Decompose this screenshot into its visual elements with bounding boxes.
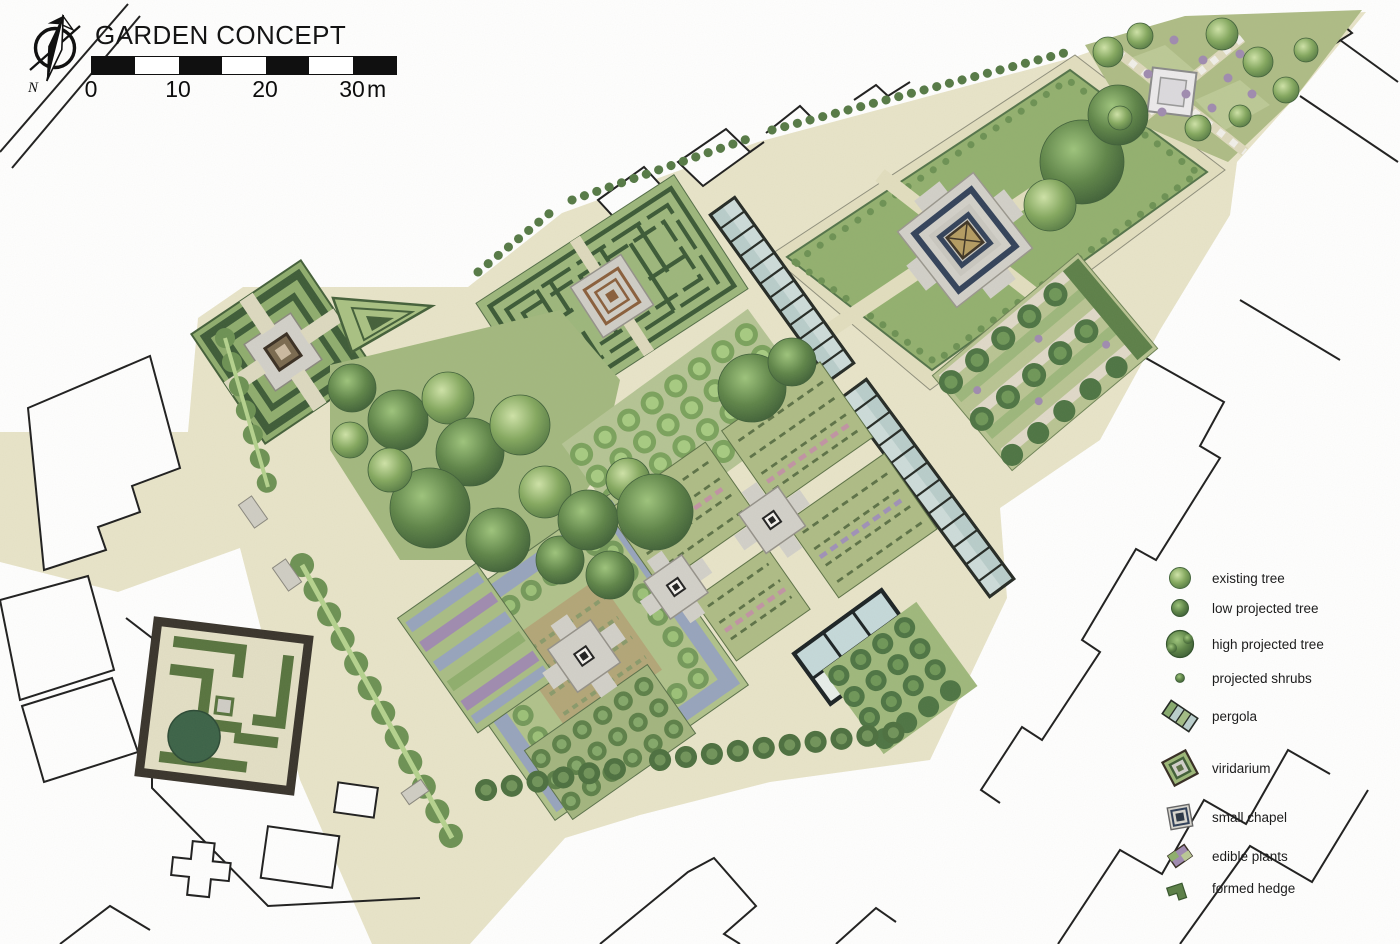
scale-tick-10: 10	[165, 76, 191, 103]
garden-concept-plan: N GARDEN CONCEPT 0 10 20 30 m existing t…	[0, 0, 1400, 944]
north-arrow-icon: N	[22, 8, 88, 104]
scale-bar	[91, 56, 397, 75]
scale-segment	[309, 57, 352, 74]
scale-segment	[222, 57, 265, 74]
scale-segment	[266, 57, 309, 74]
scale-tick-30: 30	[339, 76, 365, 103]
scale-segment	[135, 57, 178, 74]
scale-tick-0: 0	[85, 76, 98, 103]
scale-segment	[179, 57, 222, 74]
north-label: N	[27, 80, 39, 96]
scale-unit: m	[367, 76, 386, 103]
garden-plan-map	[0, 0, 1400, 944]
scale-segment	[353, 57, 396, 74]
page-title: GARDEN CONCEPT	[95, 20, 346, 51]
scale-tick-20: 20	[252, 76, 278, 103]
scale-segment	[92, 57, 135, 74]
paper-grain-texture	[0, 0, 1400, 944]
